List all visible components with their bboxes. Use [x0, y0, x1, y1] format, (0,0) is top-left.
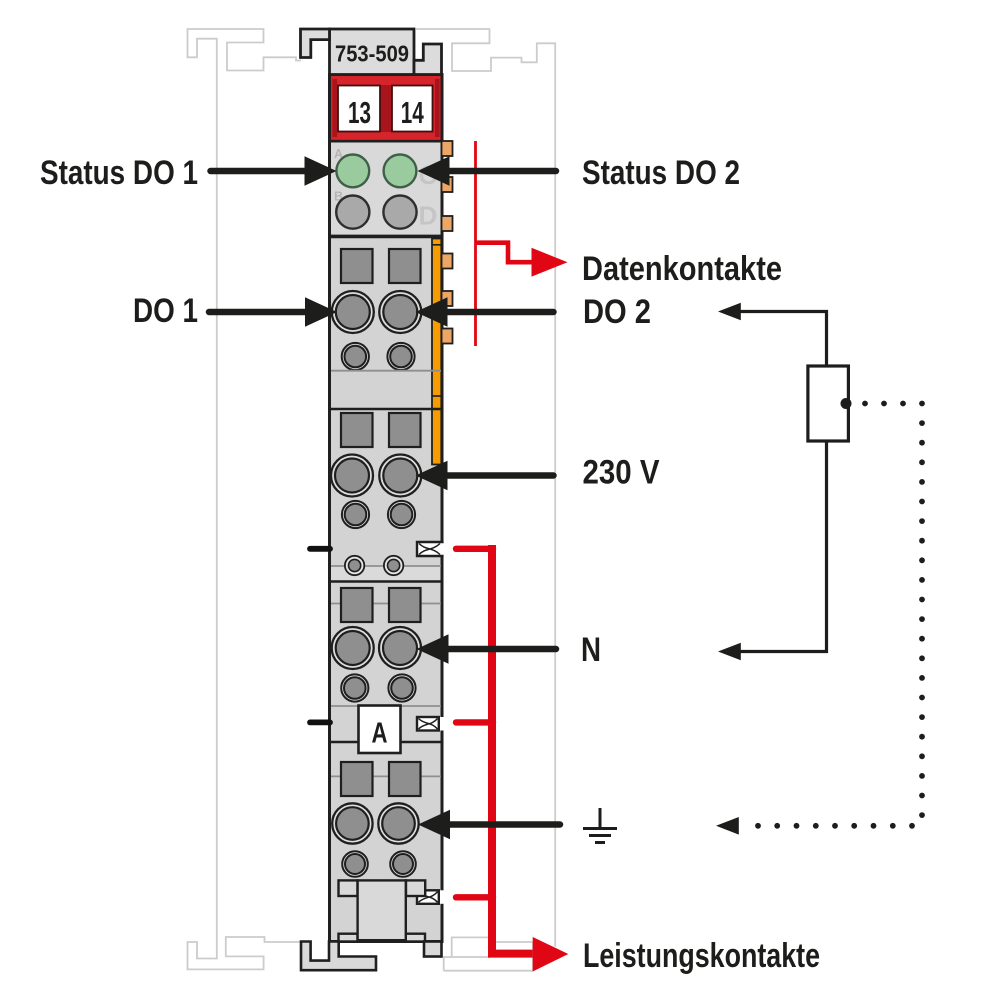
svg-text:D: D [419, 201, 438, 231]
svg-text:Status DO 2: Status DO 2 [582, 154, 740, 192]
svg-text:Status DO 1: Status DO 1 [40, 154, 198, 192]
svg-text:230 V: 230 V [583, 454, 660, 492]
svg-text:Datenkontakte: Datenkontakte [582, 250, 782, 288]
svg-text:DO 2: DO 2 [583, 293, 651, 331]
svg-text:753-509: 753-509 [335, 41, 409, 67]
svg-text:14: 14 [401, 95, 425, 130]
svg-text:N: N [581, 631, 601, 669]
svg-text:13: 13 [348, 95, 371, 130]
svg-text:A: A [372, 718, 388, 750]
svg-text:DO 1: DO 1 [133, 292, 198, 330]
svg-text:Leistungskontakte: Leistungskontakte [583, 937, 820, 975]
